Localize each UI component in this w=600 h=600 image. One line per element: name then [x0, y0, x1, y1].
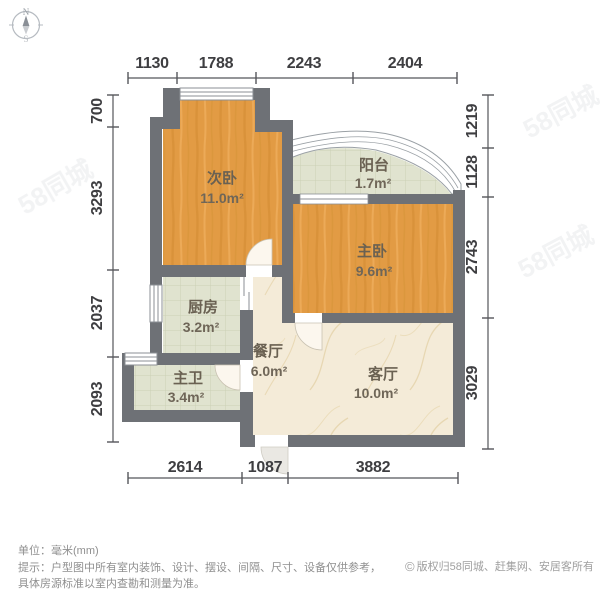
footer-tip-line1: 提示：户型图中所有室内装饰、设计、摆设、间隔、尺寸、设备仅供参考， — [18, 560, 381, 576]
wall-segment — [122, 410, 253, 422]
dim-top-0: 1130 — [135, 55, 169, 72]
master-bedroom-area: 9.6m² — [356, 263, 393, 279]
bedroom2-name: 次卧 — [207, 169, 237, 187]
window — [180, 88, 253, 100]
dim-bottom-0: 2614 — [168, 459, 203, 476]
master-door-opening — [295, 313, 322, 323]
compass-south-label: S — [23, 34, 28, 44]
wall-segment — [150, 117, 162, 365]
kitchen-area: 3.2m² — [183, 319, 220, 335]
compass: N S — [9, 7, 43, 44]
dim-left-1: 3293 — [89, 180, 106, 215]
master-bedroom-name: 主卧 — [357, 242, 387, 260]
dim-bottom-1: 1087 — [248, 459, 283, 476]
dim-top-1: 1788 — [199, 55, 234, 72]
entrance-opening — [255, 435, 288, 447]
footer-tip-line2: 具体房源标准以室内查勘和测量为准。 — [18, 576, 205, 592]
wall-segment — [453, 190, 465, 447]
dim-right-2: 2743 — [464, 239, 481, 274]
dim-right-3: 3029 — [464, 365, 481, 400]
dining-area: 6.0m² — [251, 363, 288, 379]
copyright-icon: © — [405, 559, 415, 574]
copyright-text: 版权归58同城、赶集网、安居客所有 — [417, 561, 594, 573]
dim-left-3: 2093 — [89, 381, 106, 416]
dim-left-0: 700 — [89, 98, 106, 124]
bedroom2-door-opening — [246, 265, 272, 277]
master-bath-area: 3.4m² — [168, 389, 205, 405]
kitchen-name: 厨房 — [188, 298, 218, 316]
floorplan-canvas: 58同城 58同城 58同城 58同城 N S — [0, 0, 600, 530]
balcony-area: 1.7m² — [355, 175, 392, 191]
wall-segment — [282, 132, 293, 323]
dim-right-0: 1219 — [464, 103, 481, 138]
floorplan-page: 58同城 58同城 58同城 58同城 N S — [0, 0, 600, 600]
watermark-text: 58同城 — [513, 220, 599, 284]
footer-unit-line: 单位：毫米(mm) — [18, 543, 99, 559]
dining-name: 餐厅 — [253, 342, 283, 360]
bedroom2-area: 11.0m² — [200, 190, 244, 206]
watermark-text: 58同城 — [13, 154, 98, 220]
dim-bottom-2: 3882 — [356, 459, 391, 476]
window — [150, 285, 162, 322]
dim-left-2: 2037 — [89, 295, 106, 330]
dim-right-1: 1128 — [464, 155, 481, 189]
kitchen-door-opening — [240, 277, 253, 310]
living-name: 客厅 — [367, 365, 398, 383]
balcony-name: 阳台 — [359, 156, 389, 174]
dim-top-3: 2404 — [388, 55, 423, 72]
dim-top-2: 2243 — [287, 55, 322, 72]
copyright-notice: ©版权归58同城、赶集网、安居客所有 — [405, 558, 594, 574]
compass-north-label: N — [23, 7, 30, 17]
master-bath-name: 主卫 — [173, 369, 203, 387]
window — [125, 353, 157, 365]
compass-needle-north — [23, 16, 30, 27]
watermark-text: 58同城 — [518, 80, 600, 144]
living-area: 10.0m² — [354, 385, 399, 401]
wall-segment — [255, 120, 293, 132]
